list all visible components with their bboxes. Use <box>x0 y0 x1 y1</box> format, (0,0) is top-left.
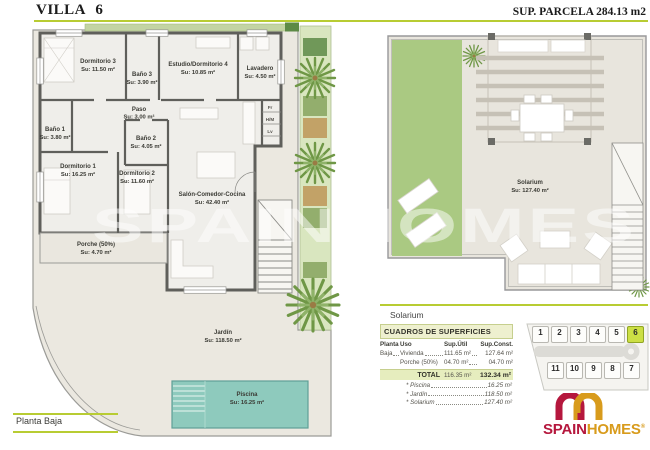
room-label: Paso <box>132 107 147 113</box>
plot-6-highlighted: 6 <box>627 326 644 343</box>
table-row: Baja Vivienda 111.65 m² 127.64 m² <box>380 350 513 357</box>
room-area: Su: 10.85 m² <box>181 69 215 76</box>
room-area: Su: 16.25 m² <box>61 171 95 178</box>
extra-value: 118.50 m² <box>485 391 512 398</box>
plot-8: 8 <box>604 362 621 379</box>
extra-name: * Solarium <box>406 399 435 406</box>
room-area: Su: 127.40 m² <box>511 187 548 194</box>
room-label: Dormitorio 2 <box>119 171 155 177</box>
road <box>534 346 626 357</box>
room-label: Salón-Comedor-Cocina <box>179 192 246 198</box>
col-planta: Planta <box>380 341 400 348</box>
extra-value: 16.25 m² <box>488 382 512 389</box>
solarium-section-label: Solarium <box>390 310 424 320</box>
solarium-section-line <box>380 304 648 306</box>
room-label: Baño 2 <box>136 136 157 142</box>
cell-util: 111.65 m² <box>444 350 471 357</box>
room-label: Jardín <box>214 330 232 336</box>
room-label: Piscina <box>236 392 258 398</box>
room-area: Su: 3.00 m² <box>124 114 155 121</box>
room-label: Baño 3 <box>132 72 153 78</box>
registered-mark: ® <box>641 424 645 430</box>
plot-10: 10 <box>566 362 583 379</box>
plot-3: 3 <box>570 326 587 343</box>
extra-name: * Jardín <box>406 391 427 398</box>
room-area: Su: 11.60 m² <box>120 178 154 185</box>
surfaces-table: CUADROS DE SUPERFICIES Planta Uso Sup.Út… <box>380 324 513 406</box>
cell-planta: Baja <box>380 350 392 357</box>
floorplan-sheet: VILLA 6 SUP. PARCELA 284.13 m2 <box>0 0 650 450</box>
plot-1: 1 <box>532 326 549 343</box>
floor-label-line-bottom <box>13 431 118 433</box>
appliance-label-dishwasher: Lv <box>267 129 273 134</box>
cell-const: 04.70 m² <box>489 359 513 366</box>
cell-const: 127.64 m² <box>485 350 513 357</box>
room-area: Su: 118.50 m² <box>204 337 241 344</box>
cell-uso: Porche (50%) <box>400 359 438 366</box>
room-area: Su: 16.25 m² <box>230 399 264 406</box>
appliance-label-oven: H/M <box>266 117 275 122</box>
dot-leader <box>472 355 477 356</box>
plot-7: 7 <box>623 362 640 379</box>
total-util: 116.35 m² <box>444 372 476 379</box>
room-area: Su: 4.05 m² <box>131 143 162 150</box>
total-label: TOTAL <box>382 372 444 379</box>
extra-value: 127.40 m² <box>484 399 512 406</box>
spainhomes-wordmark: SPAINHOMES® <box>543 421 645 438</box>
extra-row: * Jardín 118.50 m² <box>406 391 512 398</box>
plot-9: 9 <box>585 362 602 379</box>
room-area: Su: 11.50 m² <box>81 66 115 73</box>
logo-spain-text: SPAIN <box>543 421 587 438</box>
room-area: Su: 4.50 m² <box>245 73 276 80</box>
dot-leader <box>428 395 483 396</box>
surfaces-table-header: Planta Uso Sup.Útil Sup.Const. <box>380 341 513 348</box>
room-label: Estudio/Dormitorio 4 <box>168 62 228 68</box>
plot-5: 5 <box>608 326 625 343</box>
extra-row: * Solarium 127.40 m² <box>406 399 512 406</box>
plot-4: 4 <box>589 326 606 343</box>
palm-icon <box>295 58 335 98</box>
dot-leader <box>436 404 484 405</box>
plot-location-map: 1 2 3 4 5 6 11 10 9 8 7 <box>524 320 650 396</box>
room-label: Solarium <box>517 180 543 186</box>
table-total-row: TOTAL 116.35 m² 132.34 m² <box>380 369 513 380</box>
room-label: Lavadero <box>247 66 274 72</box>
col-util: Sup.Útil <box>444 341 478 348</box>
plot-11: 11 <box>547 362 564 379</box>
room-label: Dormitorio 1 <box>60 164 96 170</box>
table-extras: * Piscina 16.25 m² * Jardín 118.50 m² * … <box>406 382 512 406</box>
room-area: Su: 3.90 m² <box>127 79 158 86</box>
appliance-label-fridge: Fr <box>268 105 273 110</box>
table-row: Porche (50%) 04.70 m² 04.70 m² <box>380 359 513 366</box>
col-uso: Uso <box>400 341 444 348</box>
extra-name: * Piscina <box>406 382 430 389</box>
col-const: Sup.Const. <box>478 341 513 348</box>
room-label: Dormitorio 3 <box>80 59 116 65</box>
floor-label: Planta Baja <box>16 416 62 426</box>
cell-uso: Vivienda <box>400 350 424 357</box>
solarium-plan <box>388 33 649 297</box>
palm-icon <box>287 279 339 331</box>
floor-label-line-top <box>13 413 118 415</box>
spainhomes-arches-icon <box>543 393 649 421</box>
plot-2: 2 <box>551 326 568 343</box>
spainhomes-logo: SPAINHOMES® <box>543 393 649 445</box>
total-const: 132.34 m² <box>476 372 511 379</box>
surfaces-table-title: CUADROS DE SUPERFICIES <box>380 324 513 339</box>
dot-leader <box>393 355 399 356</box>
dot-leader <box>469 364 477 365</box>
palm-icon <box>295 143 335 183</box>
dot-leader <box>431 387 487 388</box>
room-area: Su: 3.80 m² <box>40 134 71 141</box>
dot-leader <box>425 355 443 356</box>
room-label: Baño 1 <box>45 127 66 133</box>
cell-util: 04.70 m² <box>444 359 468 366</box>
watermark-text: SPAINHOMES <box>92 200 637 253</box>
extra-row: * Piscina 16.25 m² <box>406 382 512 389</box>
logo-homes-text: HOMES <box>587 421 641 438</box>
